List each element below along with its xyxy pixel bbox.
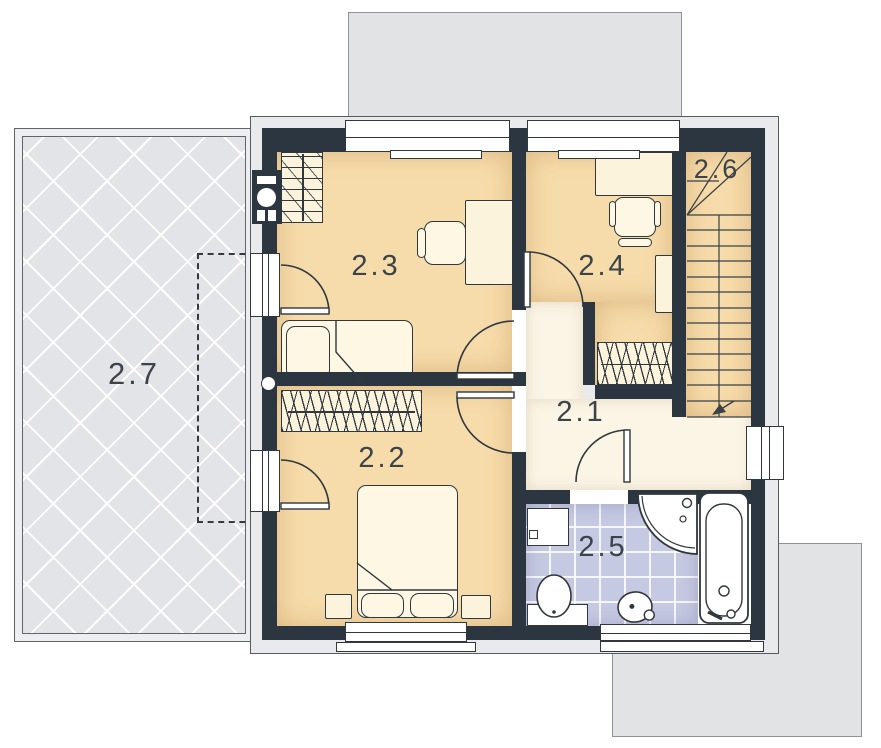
room-label-2-2: 2.2 (352, 444, 414, 473)
chimney-block (252, 170, 282, 224)
skylight-dashed-outline (197, 253, 256, 523)
floor-plan: 2.1 2.2 2.3 2.4 2.5 2.6 2.7 (0, 0, 881, 748)
bathtub-bay-floor (698, 504, 751, 626)
room-label-2-3: 2.3 (345, 252, 407, 281)
chimney-slot (257, 176, 276, 184)
nightstand-right (461, 595, 491, 619)
bookshelf (281, 152, 323, 223)
window-right-hall (746, 426, 784, 480)
office-chair (614, 197, 656, 237)
double-bed-pillow-right (410, 593, 454, 618)
office-chair-base (618, 238, 652, 247)
staircase-2-6-floor (686, 152, 751, 417)
window-sash-top-left (390, 150, 482, 159)
wall-stairs-left (672, 152, 686, 417)
chimney-flue-circle (257, 188, 276, 207)
room-label-2-4: 2.4 (572, 252, 634, 281)
desk-chair (424, 221, 466, 265)
desk-chair-back (417, 228, 426, 258)
wall-23-24 (512, 152, 526, 310)
room-label-2-7: 2.7 (103, 358, 165, 389)
roof-overhang-top (348, 12, 682, 124)
door-opening-22 (512, 386, 526, 452)
room-label-2-5: 2.5 (572, 533, 634, 562)
wall-point-marker (261, 376, 276, 391)
window-sill-bottom-22 (336, 642, 476, 652)
wall-bath-top-left (512, 490, 570, 504)
window-sash-top-right (558, 150, 640, 159)
bathroom-counter (527, 604, 588, 626)
window-bottom-22 (345, 622, 467, 642)
window-sill-bath (600, 641, 764, 652)
door-opening-23 (512, 310, 526, 372)
double-bed-pillow-left (361, 593, 404, 618)
room-label-2-1: 2.1 (550, 398, 612, 427)
window-top-right (527, 120, 680, 152)
door-opening-25 (570, 490, 628, 504)
wall-right (751, 128, 765, 640)
wall-23-22 (262, 372, 526, 386)
wardrobe-2 (597, 342, 673, 385)
wall-bath-top-right (628, 490, 765, 504)
room-label-2-6: 2.6 (687, 156, 747, 183)
chimney-vent-left (257, 210, 265, 221)
window-bath-bottom (600, 624, 751, 641)
wall-hall-22-lower (512, 452, 526, 626)
washing-machine-detail (529, 530, 538, 539)
wardrobe (281, 390, 422, 432)
wall-top (262, 128, 765, 152)
terrace-door-23 (250, 253, 280, 317)
desk (465, 200, 517, 285)
nightstand-left (325, 594, 352, 619)
office-chair-arm-right (654, 201, 661, 227)
terrace-door-22 (250, 450, 280, 512)
washing-machine (527, 508, 569, 546)
chimney-vent-right (268, 210, 276, 221)
window-top-left (345, 120, 510, 152)
wall-24-hall (583, 302, 595, 385)
office-chair-arm-left (609, 201, 616, 227)
